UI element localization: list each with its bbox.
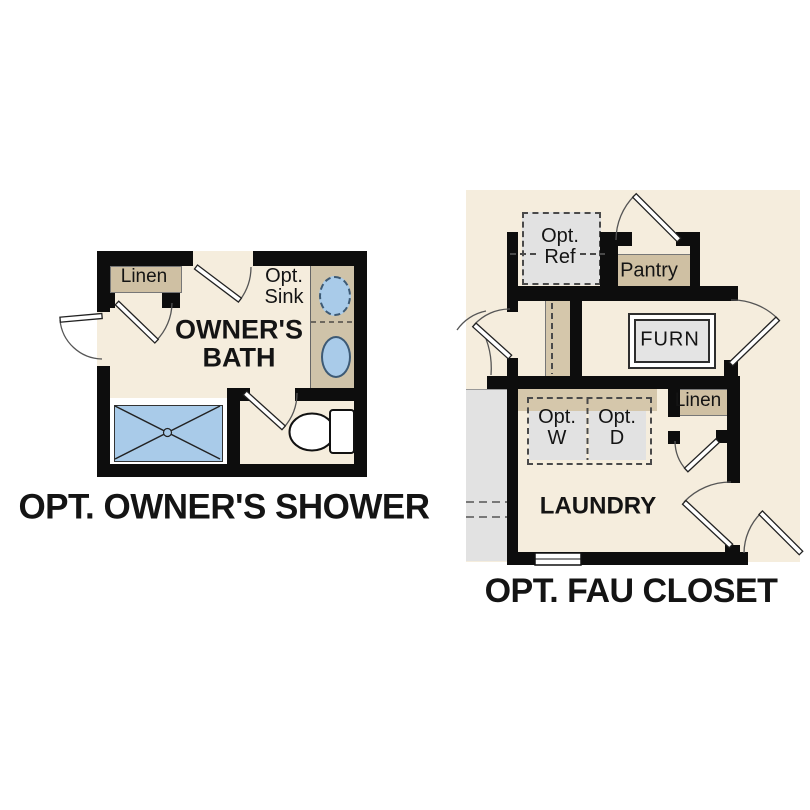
- wall: [724, 360, 738, 377]
- hall-cabinet: [545, 301, 571, 376]
- opt-dryer-label: Opt. D: [598, 407, 636, 449]
- opt-sink-label: Opt. Sink: [265, 266, 304, 308]
- wall: [727, 389, 740, 483]
- sink-standard: [321, 336, 351, 378]
- wall: [600, 232, 632, 246]
- wall: [507, 552, 748, 565]
- wall: [97, 251, 193, 266]
- wall: [716, 430, 727, 443]
- right-plan-caption: OPT. FAU CLOSET: [485, 574, 778, 610]
- linen-label: Linen: [121, 267, 168, 287]
- furnace-label: FURN: [640, 330, 700, 351]
- linen-label-right: Linen: [675, 391, 722, 411]
- bath-exterior-door: [60, 314, 102, 359]
- opt-washer-label: Opt. W: [538, 407, 576, 449]
- pantry-label: Pantry: [620, 261, 678, 282]
- wall: [295, 388, 354, 401]
- owners-bath-label: OWNER'S BATH: [175, 316, 303, 373]
- wall: [162, 293, 180, 308]
- wall: [97, 366, 110, 477]
- wall: [668, 431, 680, 444]
- wall: [487, 376, 740, 389]
- garage-area: [466, 389, 507, 561]
- wall: [253, 251, 367, 266]
- sink-optional: [319, 276, 351, 316]
- floorplan-page: Linen Opt. Sink OWNER'S BATH OPT. OWNER'…: [0, 0, 810, 810]
- wall: [690, 232, 700, 292]
- opt-ref-label: Opt. Ref: [541, 226, 579, 268]
- wall: [97, 293, 115, 308]
- wall: [507, 286, 738, 301]
- wall: [97, 464, 367, 477]
- laundry-label: LAUNDRY: [540, 493, 656, 518]
- wall: [354, 251, 367, 477]
- wall: [227, 388, 250, 401]
- left-plan-caption: OPT. OWNER'S SHOWER: [18, 490, 429, 527]
- shower-pan: [114, 405, 223, 462]
